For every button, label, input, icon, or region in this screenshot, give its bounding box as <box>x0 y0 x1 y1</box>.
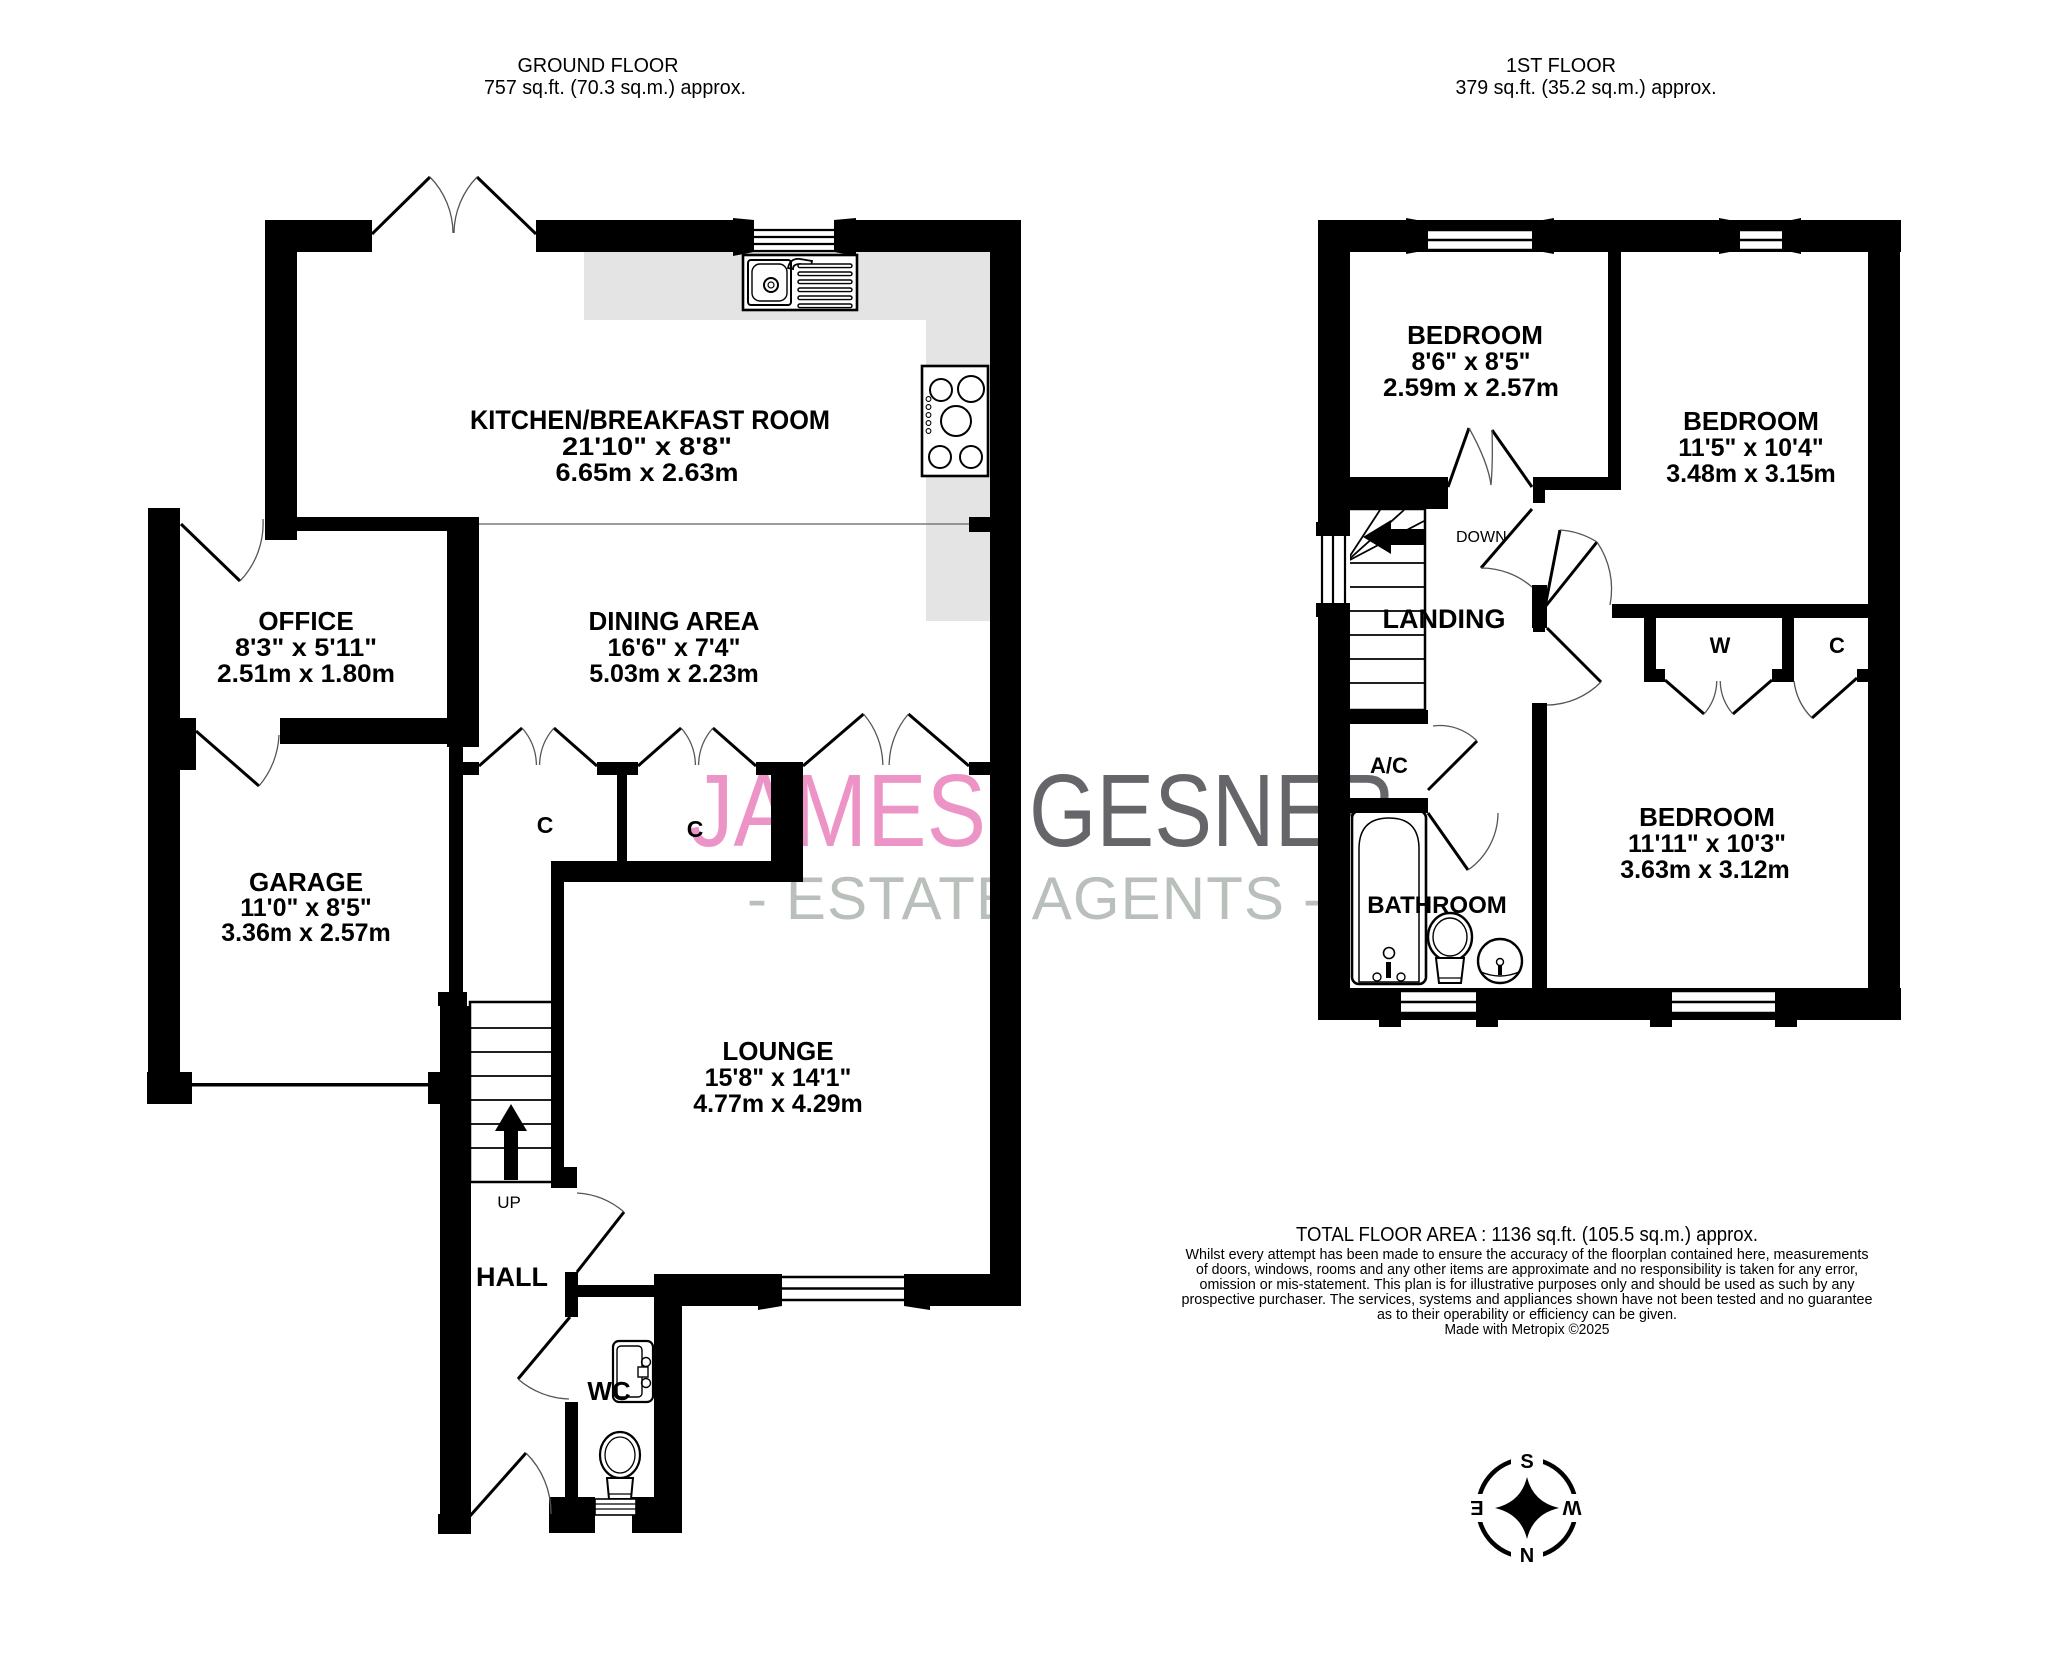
svg-text:BATHROOM: BATHROOM <box>1367 892 1507 919</box>
svg-text:8'3" x 5'11": 8'3" x 5'11" <box>235 634 377 662</box>
svg-text:prospective purchaser. The ser: prospective purchaser. The services, sys… <box>1182 1292 1873 1308</box>
svg-text:omission or mis-statement. Thi: omission or mis-statement. This plan is … <box>1200 1277 1856 1293</box>
svg-text:LOUNGE: LOUNGE <box>722 1036 833 1066</box>
svg-text:DINING AREA: DINING AREA <box>589 606 760 636</box>
svg-text:LANDING: LANDING <box>1383 604 1506 634</box>
svg-text:BEDROOM: BEDROOM <box>1407 320 1543 350</box>
svg-text:11'11" x 10'3": 11'11" x 10'3" <box>1628 830 1786 858</box>
svg-text:C: C <box>537 812 554 838</box>
svg-text:16'6" x 7'4": 16'6" x 7'4" <box>608 634 741 662</box>
svg-text:UP: UP <box>497 1193 521 1212</box>
svg-text:BEDROOM: BEDROOM <box>1683 406 1819 436</box>
svg-text:2.59m x 2.57m: 2.59m x 2.57m <box>1383 374 1559 402</box>
svg-text:E: E <box>1470 1496 1483 1518</box>
svg-text:- ESTATE AGENTS -: - ESTATE AGENTS - <box>747 865 1323 932</box>
svg-text:as to their operability or eff: as to their operability or efficiency ca… <box>1377 1307 1677 1323</box>
svg-text:N: N <box>1520 1545 1534 1567</box>
svg-text:A/C: A/C <box>1370 753 1408 778</box>
svg-text:15'8" x 14'1": 15'8" x 14'1" <box>705 1064 852 1092</box>
svg-text:TOTAL FLOOR AREA : 1136 sq.ft.: TOTAL FLOOR AREA : 1136 sq.ft. (105.5 sq… <box>1296 1223 1758 1246</box>
svg-text:4.77m x 4.29m: 4.77m x 4.29m <box>693 1090 863 1118</box>
svg-text:5.03m x 2.23m: 5.03m x 2.23m <box>589 660 759 688</box>
svg-text:WC: WC <box>587 1376 631 1406</box>
svg-text:2.51m x 1.80m: 2.51m x 1.80m <box>217 660 395 688</box>
svg-text:DOWN: DOWN <box>1456 529 1507 546</box>
svg-text:S: S <box>1520 1451 1533 1473</box>
svg-text:KITCHEN/BREAKFAST ROOM: KITCHEN/BREAKFAST ROOM <box>470 405 830 435</box>
svg-text:1ST FLOOR: 1ST FLOOR <box>1506 55 1616 77</box>
svg-text:HALL: HALL <box>476 1262 548 1292</box>
svg-text:of doors, windows, rooms and a: of doors, windows, rooms and any other i… <box>1196 1262 1858 1278</box>
svg-text:3.36m x 2.57m: 3.36m x 2.57m <box>221 919 391 947</box>
svg-text:BEDROOM: BEDROOM <box>1639 802 1775 832</box>
svg-text:11'5" x 10'4": 11'5" x 10'4" <box>1678 434 1823 462</box>
svg-text:C: C <box>687 816 704 842</box>
svg-text:OFFICE: OFFICE <box>258 606 353 636</box>
svg-text:3.48m x 3.15m: 3.48m x 3.15m <box>1666 460 1836 488</box>
svg-text:Whilst every attempt has been: Whilst every attempt has been made to en… <box>1186 1247 1869 1263</box>
svg-text:W: W <box>1562 1496 1581 1518</box>
svg-text:11'0" x 8'5": 11'0" x 8'5" <box>240 894 372 922</box>
svg-text:JAMES: JAMES <box>689 753 986 868</box>
svg-text:8'6" x 8'5": 8'6" x 8'5" <box>1411 348 1530 376</box>
svg-text:C: C <box>1829 633 1845 658</box>
svg-text:W: W <box>1710 633 1731 658</box>
svg-text:379 sq.ft. (35.2 sq.m.) approx: 379 sq.ft. (35.2 sq.m.) approx. <box>1456 77 1717 99</box>
svg-text:6.65m x 2.63m: 6.65m x 2.63m <box>556 459 739 487</box>
svg-text:3.63m x 3.12m: 3.63m x 3.12m <box>1620 856 1790 884</box>
svg-text:GARAGE: GARAGE <box>249 867 363 897</box>
svg-text:GROUND FLOOR: GROUND FLOOR <box>518 55 679 77</box>
svg-text:Made with Metropix ©2025: Made with Metropix ©2025 <box>1445 1322 1610 1338</box>
svg-text:757 sq.ft. (70.3 sq.m.) approx: 757 sq.ft. (70.3 sq.m.) approx. <box>484 77 746 99</box>
svg-text:21'10" x 8'8": 21'10" x 8'8" <box>562 433 732 461</box>
